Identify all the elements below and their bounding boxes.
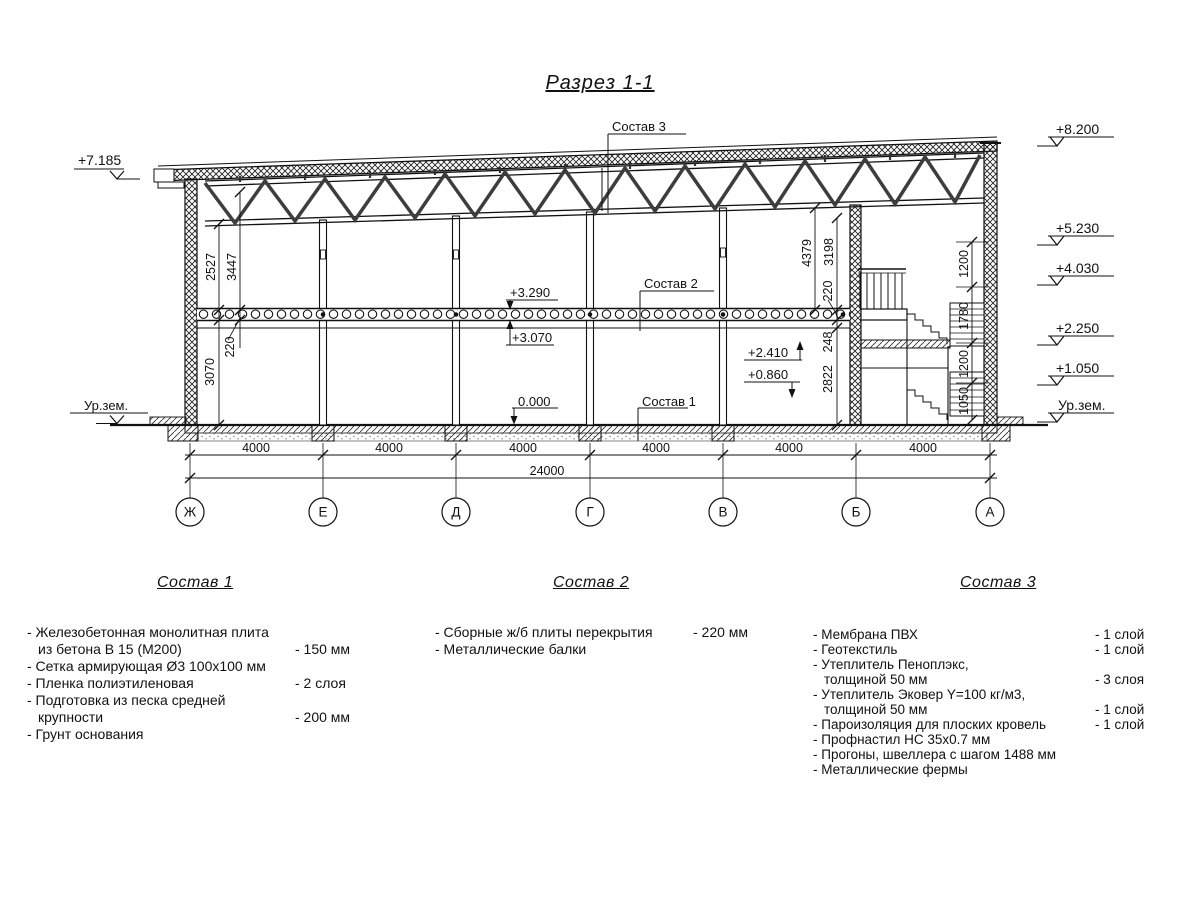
- axis-label-a: А: [985, 505, 994, 520]
- list-item: - Металлические фермы: [813, 762, 968, 777]
- axis-label-e: Е: [318, 505, 327, 520]
- dim-248: 248: [821, 332, 835, 353]
- dim-2822: 2822: [821, 365, 835, 393]
- list-item: - Прогоны, швеллера с шагом 1488 мм: [813, 747, 1056, 762]
- elevation-mezz-up: +2.410: [748, 345, 788, 360]
- leader-label-sostav1: Состав 1: [642, 394, 696, 409]
- list-item: толщиной 50 мм- 3 слоя: [813, 672, 1174, 687]
- dim-span-6: 4000: [909, 441, 937, 455]
- dim-span-3: 4000: [509, 441, 537, 455]
- elevation-right-0: +8.200: [1056, 121, 1099, 137]
- dim-3198: 3198: [822, 238, 836, 266]
- list-item: - Пленка полиэтиленовая- 2 слоя: [27, 675, 372, 691]
- page-title: Разрез 1-1: [545, 72, 654, 95]
- list-item: - Металлические балки: [435, 641, 586, 657]
- dim-total-24000: 24000: [530, 464, 565, 478]
- list-item: - Профнастил НС 35х0.7 мм: [813, 732, 990, 747]
- building-section: [110, 137, 1048, 441]
- elevation-mezz-down: +0.860: [748, 367, 788, 382]
- composition-2-title: Состав 2: [553, 574, 629, 592]
- elevation-left-roof: +7.185: [78, 152, 121, 168]
- list-item: крупности- 200 мм: [27, 709, 383, 725]
- dim-stair-1050: 1050: [957, 387, 971, 415]
- dim-220-right: 220: [821, 281, 835, 302]
- list-item: из бетона В 15 (М200)- 150 мм: [27, 641, 383, 657]
- elevation-slab-bottom: +3.070: [512, 330, 552, 345]
- dim-stair-1200a: 1200: [957, 250, 971, 278]
- list-item: - Железобетонная монолитная плита: [27, 624, 269, 640]
- dim-2527: 2527: [204, 253, 218, 281]
- composition-list-3: Состав 3 - Мембрана ПВХ- 1 слой - Геотек…: [813, 568, 1173, 798]
- dim-3070: 3070: [203, 358, 217, 386]
- leader-label-sostav2: Состав 2: [644, 276, 698, 291]
- ground-level-label-left: Ур.зем.: [84, 398, 128, 413]
- axis-label-b: Б: [852, 505, 861, 520]
- list-item: - Мембрана ПВХ- 1 слой: [813, 627, 1163, 642]
- elevation-right-3: +2.250: [1056, 320, 1099, 336]
- dim-stair-1780: 1780: [957, 302, 971, 330]
- axis-label-d: Д: [451, 505, 460, 520]
- dim-220-left: 220: [223, 337, 237, 358]
- axis-label-zh: Ж: [184, 505, 196, 520]
- composition-3-title: Состав 3: [960, 574, 1036, 592]
- list-item: - Геотекстиль- 1 слой: [813, 642, 1163, 657]
- dim-span-1: 4000: [242, 441, 270, 455]
- list-item: толщиной 50 мм- 1 слой: [813, 702, 1174, 717]
- dim-3447: 3447: [225, 253, 239, 281]
- dim-4379: 4379: [800, 239, 814, 267]
- elevation-right-1: +5.230: [1056, 220, 1099, 236]
- dim-span-5: 4000: [775, 441, 803, 455]
- composition-list-2: Состав 2 - Сборные ж/б плиты перекрытия-…: [435, 568, 765, 688]
- list-item: - Сборные ж/б плиты перекрытия- 220 мм: [435, 624, 755, 640]
- dim-stair-1200b: 1200: [957, 350, 971, 378]
- axis-label-g: Г: [586, 505, 593, 520]
- drawing-sheet: Разрез 1-1 Состав 3 Состав 2 Состав 1 +7…: [0, 0, 1200, 900]
- elevation-floor-zero: 0.000: [518, 394, 551, 409]
- composition-list-1: Состав 1 - Железобетонная монолитная пли…: [27, 568, 387, 768]
- elevation-right-2: +4.030: [1056, 260, 1099, 276]
- list-item: - Утеплитель Пеноплэкс,: [813, 657, 969, 672]
- list-item: - Сетка армирующая Ø3 100х100 мм: [27, 658, 266, 674]
- list-item: - Утеплитель Эковер Y=100 кг/м3,: [813, 687, 1025, 702]
- axis-label-v: В: [718, 505, 727, 520]
- leader-label-sostav3: Состав 3: [612, 119, 666, 134]
- elevation-slab-top: +3.290: [510, 285, 550, 300]
- ground-level-label-right: Ур.зем.: [1058, 397, 1106, 413]
- elevation-right-4: +1.050: [1056, 360, 1099, 376]
- list-item: - Грунт основания: [27, 726, 144, 742]
- dim-span-4: 4000: [642, 441, 670, 455]
- composition-1-title: Состав 1: [157, 574, 233, 592]
- dim-span-2: 4000: [375, 441, 403, 455]
- list-item: - Подготовка из песка средней: [27, 692, 226, 708]
- list-item: - Пароизоляция для плоских кровель- 1 сл…: [813, 717, 1163, 732]
